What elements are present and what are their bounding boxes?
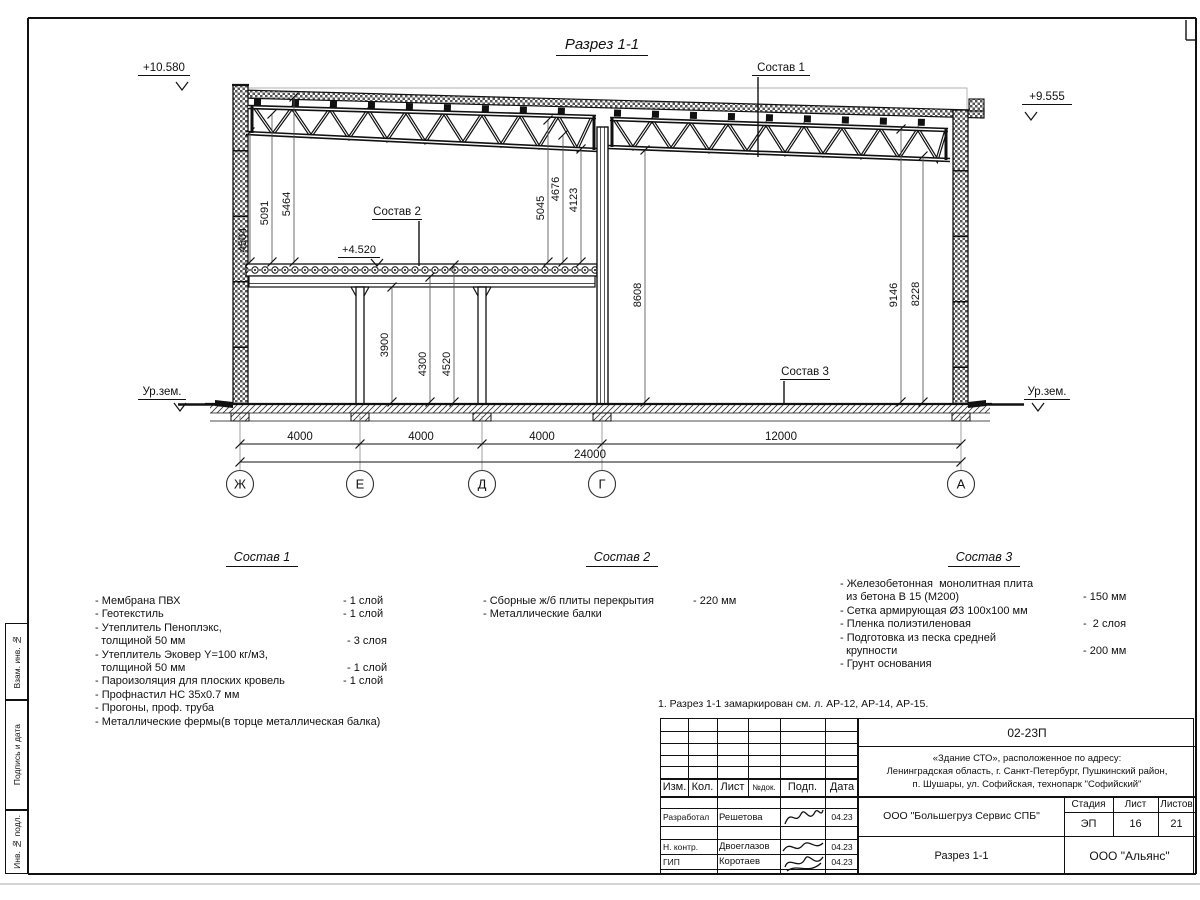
list-item: - Профнастил НС 35х0.7 мм xyxy=(95,689,435,702)
sheet-note: 1. Разрез 1-1 замаркирован см. л. АР-12,… xyxy=(658,698,928,710)
tb-col-kol: Кол. xyxy=(688,778,717,796)
elevation-marks xyxy=(174,82,1044,411)
building-section xyxy=(178,85,1024,421)
tb-date-developer: 04.23 xyxy=(825,808,859,826)
tb-col-ndok: №док. xyxy=(748,778,780,796)
composition-2-title: Состав 2 xyxy=(586,550,658,567)
axis-e: Е xyxy=(356,477,365,492)
composition-2-list: - Сборные ж/б плиты перекрытия- 220 мм -… xyxy=(483,595,773,622)
tb-date-gip: 04.23 xyxy=(825,854,859,869)
foundations xyxy=(231,413,970,421)
frame-box-inv-podl: Инв. № подл. xyxy=(5,810,28,874)
tb-client: ООО "Большегруз Сервис СПБ" xyxy=(859,796,1064,836)
dim-8228: 8228 xyxy=(910,282,922,306)
composition-3-title: Состав 3 xyxy=(948,550,1020,567)
dim-8608: 8608 xyxy=(632,283,644,307)
elevation-mark-roof-left xyxy=(176,82,188,90)
tb-stage-label: Стадия xyxy=(1064,796,1113,812)
mezzanine-beam xyxy=(249,276,595,287)
callout-sostav-1: Состав 1 xyxy=(752,62,810,76)
tb-sheets-label: Листов xyxy=(1158,796,1195,812)
dim-span-4: 12000 xyxy=(765,431,797,443)
roof-deck xyxy=(240,90,984,118)
ground-level-label-right: Ур.зем. xyxy=(1024,386,1070,400)
elevation-label-roof-left: +10.580 xyxy=(138,62,190,76)
list-item: крупности- 200 мм xyxy=(840,645,1150,658)
tb-role-ncontr: Н. контр. xyxy=(663,839,717,854)
tb-col-list: Лист xyxy=(717,778,748,796)
tb-sheet-value: 16 xyxy=(1113,812,1158,836)
dim-span-2: 4000 xyxy=(408,431,434,443)
list-item: - Утеплитель Эковер Y=100 кг/м3, xyxy=(95,649,435,662)
tb-role-developer: Разработал xyxy=(663,808,717,826)
dim-5464: 5464 xyxy=(281,192,293,216)
tb-name-gip: Коротаев xyxy=(719,854,779,869)
ground-level-label-left: Ур.зем. xyxy=(138,386,186,400)
column-axis-d xyxy=(473,287,491,404)
tb-col-podp: Подп. xyxy=(780,778,825,796)
axis-d: Д xyxy=(478,477,487,492)
roof-edge-upstand xyxy=(969,99,984,111)
list-item: - Металлические балки xyxy=(483,608,773,621)
dim-5091: 5091 xyxy=(259,201,271,225)
list-item: из бетона В 15 (М200)- 150 мм xyxy=(840,591,1150,604)
tb-section-name: Разрез 1-1 xyxy=(859,836,1064,875)
dim-total: 24000 xyxy=(574,449,606,461)
truss-right xyxy=(608,118,950,160)
axis-zh: Ж xyxy=(234,477,246,492)
dim-span-1: 4000 xyxy=(287,431,313,443)
list-item: - Прогоны, проф. труба xyxy=(95,702,435,715)
list-item: - Мембрана ПВХ- 1 слой xyxy=(95,595,435,608)
dim-3900: 3900 xyxy=(379,333,391,357)
list-item: - Сетка армирующая Ø3 100х100 мм xyxy=(840,605,1150,618)
signature-ncontr-gip xyxy=(779,837,827,875)
list-item: толщиной 50 мм- 3 слоя xyxy=(95,635,435,648)
composition-3-list: - Железобетонная монолитная плита из бет… xyxy=(840,578,1150,672)
frame-box-podpis-data: Подпись и дата xyxy=(5,700,28,810)
list-item: - Пленка полиэтиленовая- 2 слоя xyxy=(840,618,1150,631)
list-item: толщиной 50 мм- 1 слой xyxy=(95,662,435,675)
truss-left xyxy=(246,106,598,150)
list-item: - Подготовка из песка средней xyxy=(840,632,1150,645)
composition-1-title: Состав 1 xyxy=(226,550,298,567)
column-axis-e xyxy=(351,287,369,404)
tb-stage-value: ЭП xyxy=(1064,812,1113,836)
horizontal-dimensions: 4000 4000 4000 12000 24000 xyxy=(236,416,966,470)
drawing-sheet: 4504 5091 5464 5045 4676 4123 8608 9146 … xyxy=(0,0,1200,900)
list-item: - Пароизоляция для плоских кровель- 1 сл… xyxy=(95,675,435,688)
elevation-label-roof-right: +9.555 xyxy=(1022,91,1072,105)
tb-role-gip: ГИП xyxy=(663,854,717,869)
tb-name-developer: Решетова xyxy=(719,808,779,826)
list-item: - Металлические фермы(в торце металличес… xyxy=(95,716,435,729)
tb-name-ncontr: Двоеглазов xyxy=(719,839,779,854)
list-item: - Железобетонная монолитная плита xyxy=(840,578,1150,591)
dim-4123: 4123 xyxy=(568,188,580,212)
dim-5045: 5045 xyxy=(535,196,547,220)
axis-bubbles: Ж Е Д Г А xyxy=(227,471,975,498)
callout-sostav-3: Состав 3 xyxy=(780,366,830,380)
list-item: - Сборные ж/б плиты перекрытия- 220 мм xyxy=(483,595,773,608)
right-wall xyxy=(953,110,968,406)
callout-sostav-2: Состав 2 xyxy=(372,206,422,220)
tb-project-address: «Здание СТО», расположенное по адресу: Л… xyxy=(859,746,1195,796)
list-item: - Геотекстиль- 1 слой xyxy=(95,608,435,621)
signature-developer xyxy=(781,804,825,830)
composition-1-list: - Мембрана ПВХ- 1 слой - Геотекстиль- 1 … xyxy=(95,595,435,729)
dim-4300: 4300 xyxy=(417,352,429,376)
dim-4520: 4520 xyxy=(441,352,453,376)
axis-g: Г xyxy=(598,477,605,492)
tb-sheet-label: Лист xyxy=(1113,796,1158,812)
tb-doc-number: 02-23П xyxy=(859,719,1195,746)
tb-company: ООО "Альянс" xyxy=(1064,836,1195,875)
list-item: - Утеплитель Пеноплэкс, xyxy=(95,622,435,635)
elevation-mark-ground-right xyxy=(1032,403,1044,411)
tb-sheets-value: 21 xyxy=(1158,812,1195,836)
column-axis-g xyxy=(597,127,608,404)
dim-span-3: 4000 xyxy=(529,431,555,443)
title-block: Изм. Кол. Лист №док. Подп. Дата Разработ… xyxy=(660,718,1194,874)
tb-col-izm: Изм. xyxy=(661,778,688,796)
list-item: - Грунт основания xyxy=(840,658,1150,671)
drawing-title: Разрез 1-1 xyxy=(556,36,648,56)
tb-col-data: Дата xyxy=(825,778,859,796)
tb-date-ncontr: 04.23 xyxy=(825,839,859,854)
elevation-label-floor: +4.520 xyxy=(338,244,380,258)
elevation-mark-roof-right xyxy=(1025,112,1037,120)
dim-4504: 4504 xyxy=(237,228,249,252)
axis-a: А xyxy=(957,477,966,492)
dim-4676: 4676 xyxy=(550,177,562,201)
dim-9146: 9146 xyxy=(888,283,900,307)
frame-box-vzam-inv: Взам. инв. № xyxy=(5,623,28,700)
